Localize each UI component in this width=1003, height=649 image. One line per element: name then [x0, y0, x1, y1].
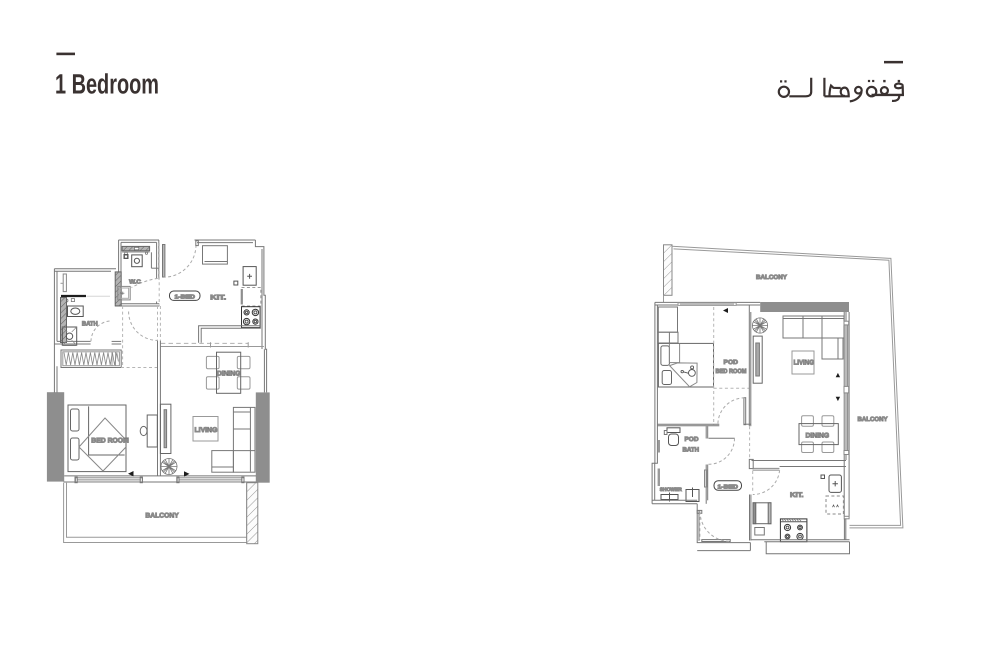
svg-text:BALCONY: BALCONY [756, 274, 787, 281]
svg-text:POD: POD [724, 359, 739, 366]
svg-text:BED ROOM: BED ROOM [91, 438, 129, 445]
svg-text:1 Bedroom: 1 Bedroom [55, 69, 159, 100]
svg-text:BATH: BATH [82, 321, 98, 328]
svg-text:LIVING: LIVING [195, 427, 218, 434]
svg-text:KIT.: KIT. [790, 492, 804, 499]
svg-text:BALCONY: BALCONY [145, 513, 179, 520]
svg-text:BALCONY: BALCONY [858, 416, 888, 423]
svg-text:LIVING: LIVING [794, 360, 815, 367]
svg-text:KIT.: KIT. [210, 295, 226, 302]
svg-text:1-BED: 1-BED [718, 484, 739, 490]
svg-text:DINING: DINING [217, 370, 241, 377]
svg-text:POD: POD [685, 436, 700, 443]
svg-text:1-BED: 1-BED [175, 294, 196, 300]
svg-text:DINING: DINING [806, 432, 830, 439]
svg-text:BED ROOM: BED ROOM [716, 368, 747, 375]
svg-text:W.C: W.C [129, 279, 142, 286]
svg-text:SHOWER: SHOWER [660, 487, 682, 493]
svg-text:BATH: BATH [683, 447, 700, 454]
